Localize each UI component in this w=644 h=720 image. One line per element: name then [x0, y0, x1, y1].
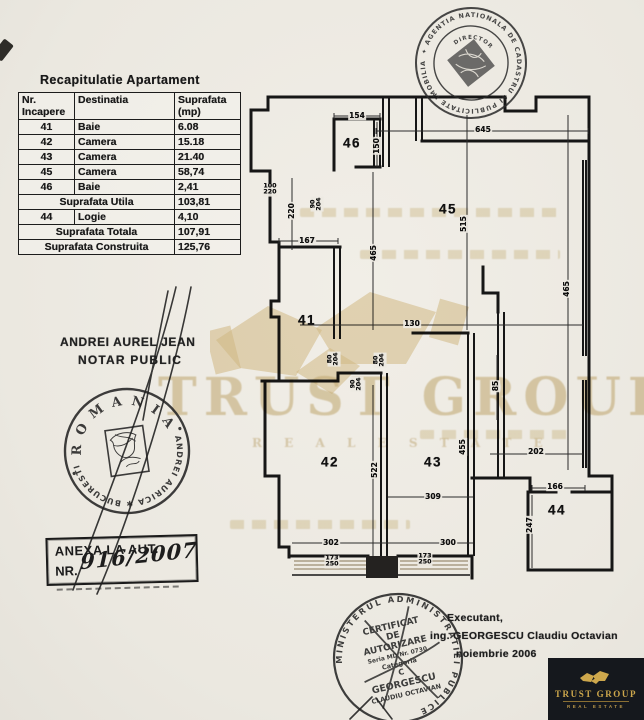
bottom-pillar: [366, 556, 398, 578]
table-row: 41Baie6.08: [19, 119, 241, 134]
handshake-icon: [579, 669, 613, 687]
table-cell: Camera: [75, 134, 175, 149]
logo-divider: [563, 701, 629, 702]
table-cell: Suprafata Construita: [19, 240, 175, 255]
table-header-row: Nr.Incapere Destinatia Suprafata(mp): [19, 92, 241, 119]
table-cell: Baie: [75, 119, 175, 134]
table-cell: 41: [19, 119, 75, 134]
table-row: Suprafata Totala107,91: [19, 225, 241, 240]
table-row: 46Baie2,41: [19, 179, 241, 194]
trust-group-logo: TRUST GROUP REAL ESTATE: [548, 658, 644, 720]
col-header-destinatia: Destinatia: [75, 92, 175, 119]
notary-name: ANDREI AUREL JEAN: [60, 335, 196, 349]
plan-walls: [251, 97, 612, 578]
table-row: Suprafata Construita125,76: [19, 240, 241, 255]
table-row: 45Camera58,74: [19, 164, 241, 179]
table-cell: 6.08: [175, 119, 241, 134]
plan-walls-double: [334, 97, 586, 578]
table-cell: Camera: [75, 164, 175, 179]
plan-dimension-lines: [279, 113, 588, 568]
table-cell: 103,81: [175, 194, 241, 209]
table-cell: Logie: [75, 210, 175, 225]
table-cell: 43: [19, 149, 75, 164]
table-row: 42Camera15.18: [19, 134, 241, 149]
logo-title: TRUST GROUP: [555, 689, 637, 699]
table-cell: 46: [19, 179, 75, 194]
col-header-suprafata: Suprafata(mp): [175, 92, 241, 119]
table-cell: Camera: [75, 149, 175, 164]
scanned-floorplan-document: TRUST GROUP R E A L E S T A T E 46454142…: [0, 0, 644, 720]
executant-date: noiembrie 2006: [456, 648, 537, 660]
table-cell: 4,10: [175, 210, 241, 225]
table-cell: 42: [19, 134, 75, 149]
executant-name: ing. GEORGESCU Claudiu Octavian: [430, 630, 618, 642]
table-cell: Suprafata Totala: [19, 225, 175, 240]
table-cell: 58,74: [175, 164, 241, 179]
table-row: 44Logie4,10: [19, 210, 241, 225]
table-title: Recapitulatie Apartament: [40, 74, 241, 87]
table-cell: Suprafata Utila: [19, 194, 175, 209]
executant-label: Executant,: [447, 612, 503, 624]
table-cell: 107,91: [175, 225, 241, 240]
table-cell: 44: [19, 210, 75, 225]
recap-table-body: 41Baie6.0842Camera15.1843Camera21.4045Ca…: [19, 119, 241, 255]
table-row: 43Camera21.40: [19, 149, 241, 164]
table-cell: 21.40: [175, 149, 241, 164]
notary-title: NOTAR PUBLIC: [78, 353, 182, 367]
apartment-area-table: Nr.Incapere Destinatia Suprafata(mp) 41B…: [18, 92, 241, 256]
table-cell: Baie: [75, 179, 175, 194]
recap-table: Recapitulatie Apartament Nr.Incapere Des…: [18, 74, 241, 255]
logo-subtitle: REAL ESTATE: [567, 704, 625, 709]
table-row: Suprafata Utila103,81: [19, 194, 241, 209]
table-cell: 125,76: [175, 240, 241, 255]
table-cell: 2,41: [175, 179, 241, 194]
col-header-nr: Nr.Incapere: [19, 92, 75, 119]
table-cell: 15.18: [175, 134, 241, 149]
table-cell: 45: [19, 164, 75, 179]
